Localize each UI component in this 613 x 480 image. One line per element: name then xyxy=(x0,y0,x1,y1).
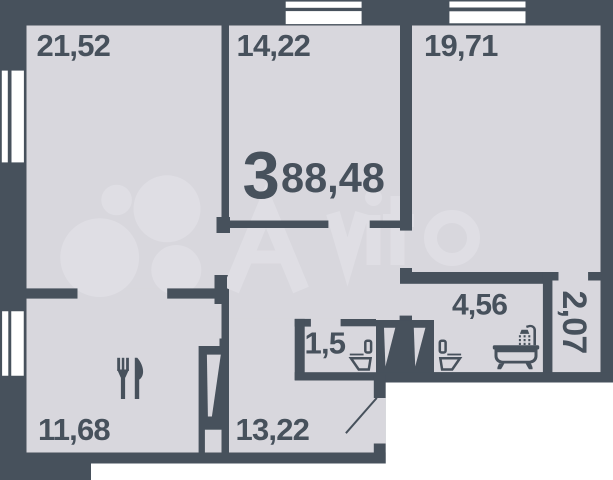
svg-text:3: 3 xyxy=(243,139,280,214)
svg-text:88,48: 88,48 xyxy=(281,154,385,201)
svg-text:21,52: 21,52 xyxy=(37,28,111,63)
svg-text:4,56: 4,56 xyxy=(452,289,507,322)
svg-text:19,71: 19,71 xyxy=(424,28,498,63)
svg-text:14,22: 14,22 xyxy=(237,28,311,63)
svg-text:2,07: 2,07 xyxy=(555,291,593,354)
svg-text:13,22: 13,22 xyxy=(236,412,310,447)
svg-text:11,68: 11,68 xyxy=(38,412,110,447)
svg-text:1,5: 1,5 xyxy=(305,326,346,361)
